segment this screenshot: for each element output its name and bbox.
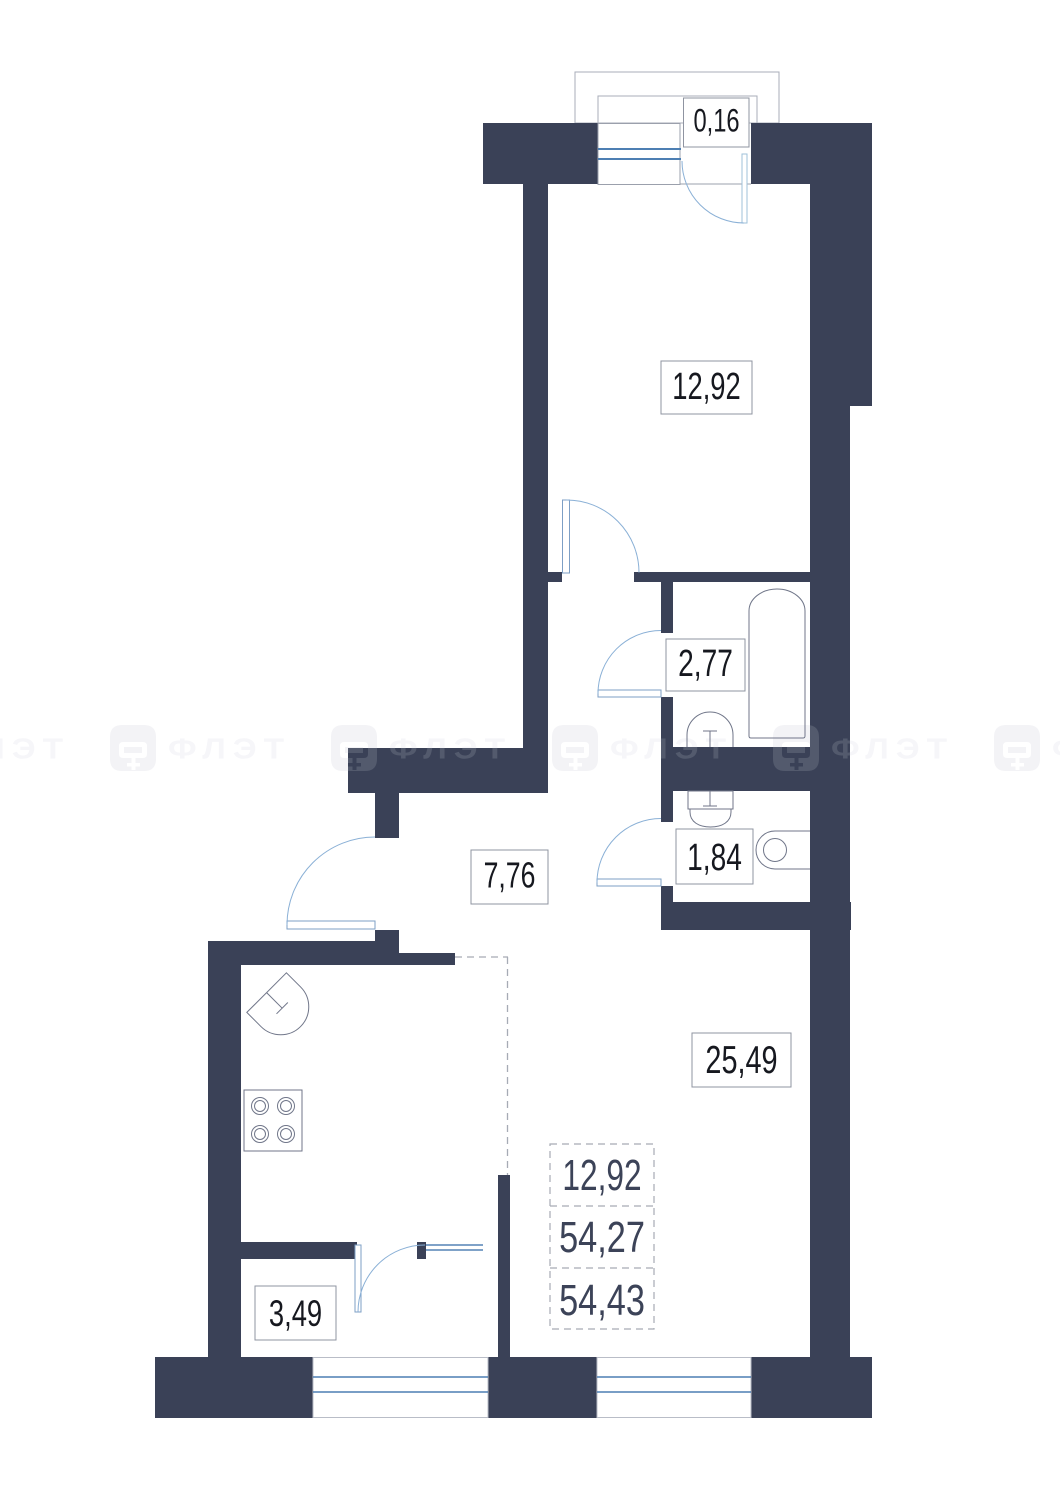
svg-text:12,92: 12,92	[562, 1151, 641, 1200]
svg-text:2,77: 2,77	[678, 643, 733, 685]
svg-text:3,49: 3,49	[269, 1293, 322, 1334]
svg-text:0,16: 0,16	[693, 103, 739, 138]
svg-text:12,92: 12,92	[672, 366, 740, 408]
svg-text:54,27: 54,27	[559, 1213, 645, 1262]
svg-text:7,76: 7,76	[484, 855, 536, 896]
svg-text:25,49: 25,49	[705, 1039, 777, 1082]
svg-text:1,84: 1,84	[687, 837, 742, 879]
svg-text:54,43: 54,43	[559, 1276, 645, 1325]
